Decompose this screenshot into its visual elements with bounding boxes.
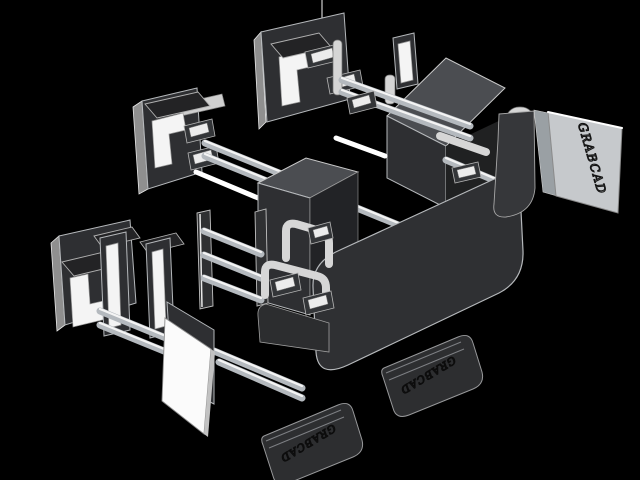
cad-render: GRABCAD — [0, 0, 640, 480]
vertical-bracket-inner — [398, 41, 413, 83]
support-post — [333, 40, 342, 95]
bracket-bend-face — [494, 111, 535, 217]
cad-viewport[interactable]: GRABCAD — [0, 0, 640, 480]
